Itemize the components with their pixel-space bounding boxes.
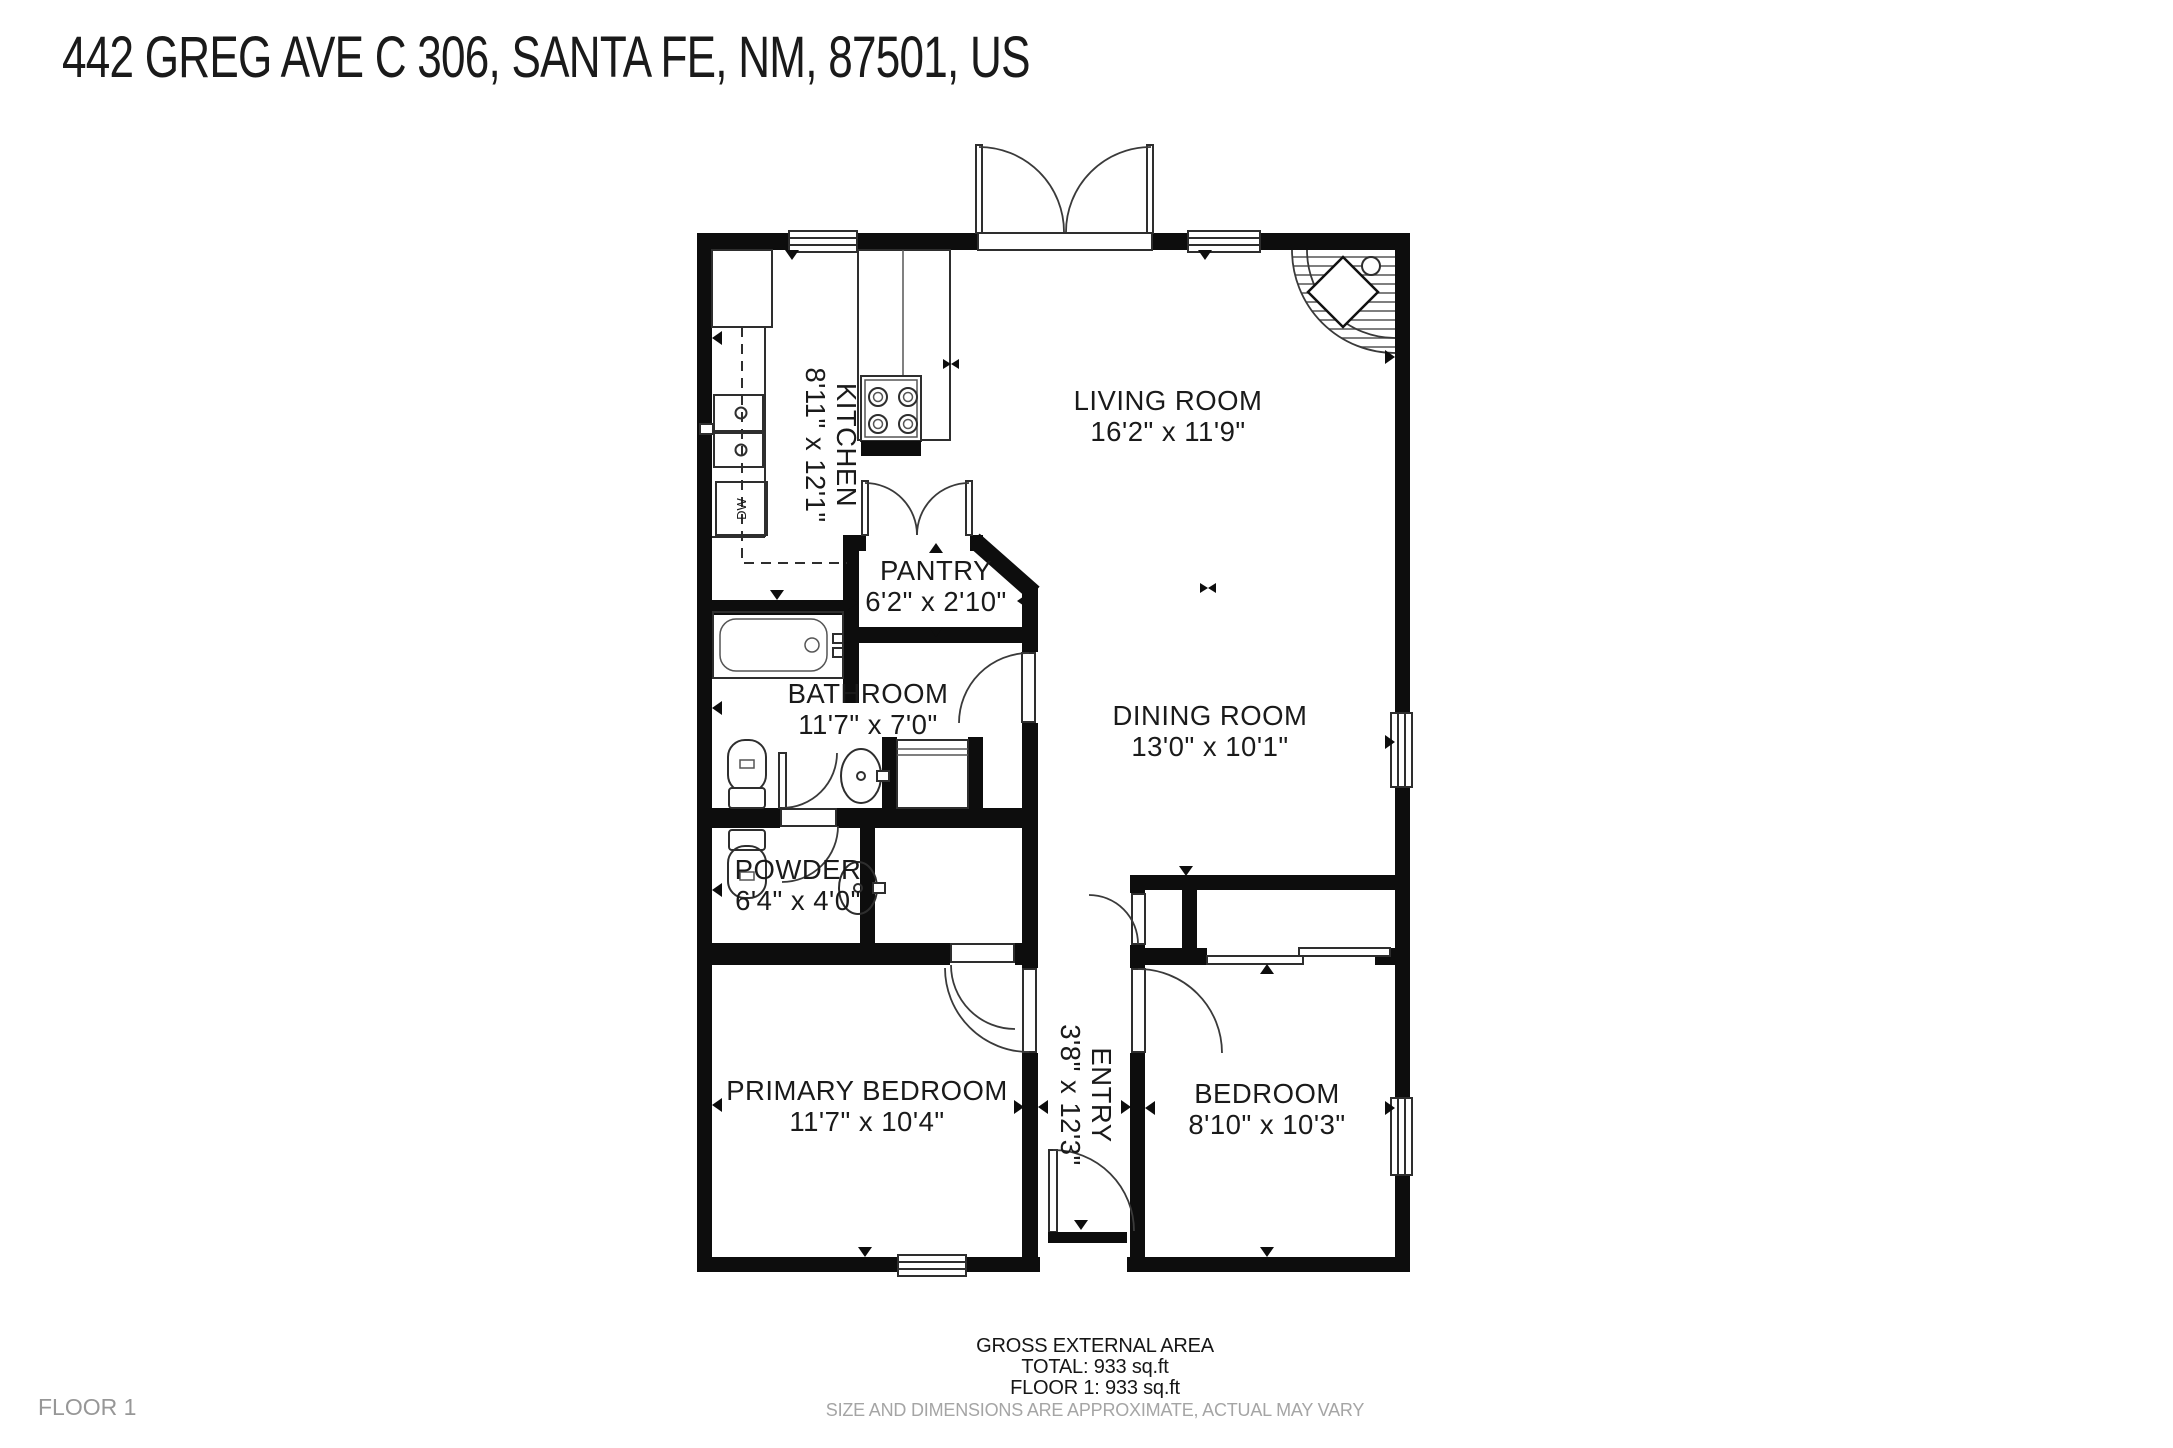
room-label: 6'2" x 2'10" (865, 586, 1007, 617)
total-area: TOTAL: 933 sq.ft (645, 1357, 1545, 1378)
door-swing-icon (779, 753, 837, 808)
linen-closet (897, 740, 968, 808)
floor-tag: FLOOR 1 (38, 1394, 136, 1421)
french-door-icon (862, 481, 972, 535)
floorplan-drawing: DW (0, 0, 2173, 1448)
window-icon (898, 1255, 966, 1276)
fireplace-icon (1285, 250, 1400, 353)
floorplan-page: 442 GREG AVE C 306, SANTA FE, NM, 87501,… (0, 0, 2173, 1448)
room-label: 3'8" x 12'3" (1055, 1024, 1086, 1166)
dishwasher-label: DW (734, 497, 749, 519)
room-label: 8'10" x 10'3" (1188, 1109, 1345, 1140)
area-summary: GROSS EXTERNAL AREA TOTAL: 933 sq.ft FLO… (645, 1336, 1545, 1421)
window-icon (789, 231, 857, 252)
door-swing-icon (945, 968, 1036, 1052)
room-label: 8'11" x 12'1" (800, 367, 831, 522)
room-label: ENTRY (1086, 1047, 1117, 1142)
bathtub-icon (713, 612, 843, 678)
room-label: 6'4" x 4'0" (735, 885, 861, 916)
door-swing-icon (1089, 894, 1145, 944)
window-icon (1391, 713, 1412, 787)
wall-dining-bedroom (1130, 875, 1410, 890)
french-door-icon (976, 145, 1153, 233)
room-label: BATHROOM (788, 678, 949, 709)
sliding-door-icon (1207, 948, 1390, 964)
refrigerator-icon (712, 250, 772, 327)
room-label: POWDER (735, 854, 862, 885)
room-label: BEDROOM (1194, 1078, 1340, 1109)
room-label: DINING ROOM (1113, 700, 1308, 731)
stove-icon (861, 376, 921, 456)
room-label: 11'7" x 7'0" (798, 709, 938, 740)
wall-bath-powder (697, 808, 1038, 828)
floor1-area: FLOOR 1: 933 sq.ft (645, 1378, 1545, 1399)
room-label: 16'2" x 11'9" (1090, 416, 1245, 447)
size-disclaimer: SIZE AND DIMENSIONS ARE APPROXIMATE, ACT… (645, 1400, 1545, 1421)
room-label: KITCHEN (831, 383, 862, 507)
wall-coat-closet-bottom (1130, 948, 1207, 965)
door-swing-icon (959, 653, 1035, 723)
room-label: LIVING ROOM (1074, 385, 1263, 416)
entry-threshold (1048, 1232, 1127, 1243)
opening-entry-door (1040, 1255, 1127, 1274)
room-label: PANTRY (880, 555, 992, 586)
wall-closet-divider (1182, 890, 1197, 948)
room-label: 11'7" x 10'4" (789, 1106, 944, 1137)
room-label: 13'0" x 10'1" (1131, 731, 1288, 762)
toilet-icon (728, 740, 766, 808)
opening-french-door (978, 233, 1152, 250)
opening-pantry (866, 533, 970, 553)
room-label: PRIMARY BEDROOM (726, 1075, 1008, 1106)
window-icon (1188, 231, 1260, 252)
wall-vanity-right (968, 737, 983, 810)
door-swing-icon (1132, 969, 1222, 1053)
vanity-sink-icon (841, 749, 889, 803)
window-icon (1391, 1098, 1412, 1175)
wall-left (697, 233, 712, 1272)
gross-area-heading: GROSS EXTERNAL AREA (645, 1336, 1545, 1357)
